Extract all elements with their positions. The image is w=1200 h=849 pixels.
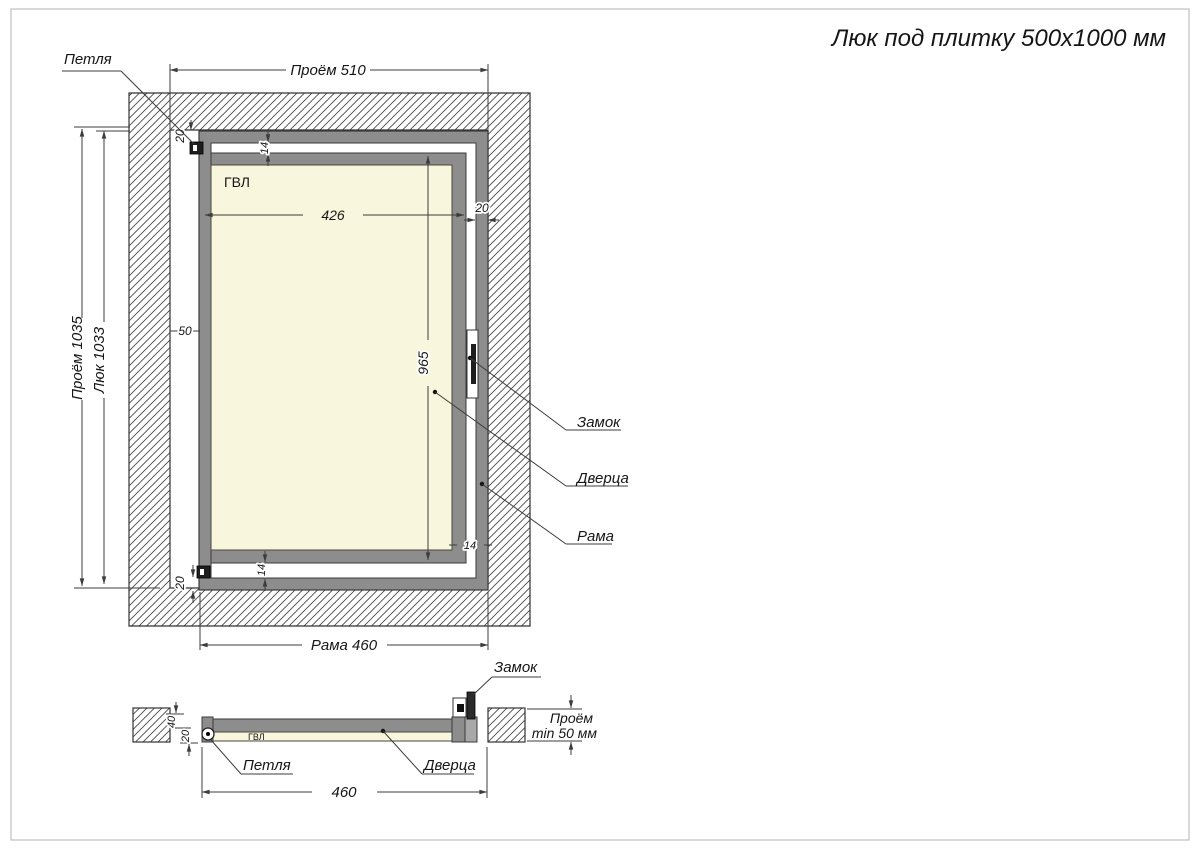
section-gvl-label: ГВЛ (248, 732, 265, 742)
dim-door-width-text: 426 (321, 207, 345, 223)
svg-text:Замок: Замок (494, 659, 538, 676)
svg-text:Замок: Замок (577, 414, 621, 431)
svg-text:Дверца: Дверца (422, 757, 476, 774)
section-door-panel (213, 719, 452, 732)
svg-text:Рама: Рама (577, 528, 614, 545)
svg-text:20: 20 (173, 576, 187, 591)
svg-text:14: 14 (464, 540, 476, 552)
dim-opening-depth-line2: min 50 мм (532, 725, 598, 741)
dim-hatch-height: Люк 1033 (91, 131, 130, 584)
hinge-bottom-icon (197, 566, 210, 578)
svg-text:50: 50 (178, 324, 192, 338)
svg-text:Дверца: Дверца (575, 470, 629, 487)
dim-opening-depth: Проём min 50 мм (527, 695, 597, 755)
dim-hinge-side-gap: 50 (170, 324, 200, 338)
hinge-top-icon (190, 142, 203, 154)
drawing-page: Люк под плитку 500х1000 мм ГВЛ (0, 0, 1200, 849)
section-view: ГВЛ 40 20 Замок (133, 659, 597, 801)
section-label-lock: Замок (473, 659, 541, 695)
front-view: ГВЛ Проём 510 Проём 103 (62, 51, 629, 654)
technical-drawing: Люк под плитку 500х1000 мм ГВЛ (0, 0, 1200, 849)
lock (467, 330, 478, 398)
dim-section-width-text: 460 (331, 784, 357, 801)
dim-depth: 40 20 (166, 702, 198, 756)
svg-text:20: 20 (474, 201, 489, 215)
dim-opening-depth-line1: Проём (550, 710, 594, 726)
svg-text:Петля: Петля (64, 51, 112, 68)
dim-door-height-text: 965 (415, 351, 431, 375)
gvl-label: ГВЛ (224, 174, 250, 190)
svg-text:14: 14 (256, 564, 268, 576)
section-frame-right-profile (465, 717, 477, 742)
section-hinge-icon (202, 728, 214, 740)
dim-depth-total-text: 40 (166, 715, 178, 728)
svg-text:Петля: Петля (243, 757, 291, 774)
dim-opening-height-text: Проём 1035 (69, 315, 86, 399)
section-lock-body (452, 717, 465, 742)
svg-text:20: 20 (173, 129, 187, 144)
dim-frame-width-text: Рама 460 (311, 637, 378, 654)
section-wall-right (488, 708, 525, 742)
section-wall-left (133, 708, 170, 742)
section-lock (453, 692, 475, 719)
drawing-title: Люк под плитку 500х1000 мм (830, 25, 1166, 52)
dim-depth-board-text: 20 (180, 729, 192, 743)
svg-text:14: 14 (259, 142, 271, 154)
section-label-hinge: Петля (211, 740, 293, 774)
dim-opening-width-text: Проём 510 (290, 62, 366, 79)
dim-hatch-height-text: Люк 1033 (91, 326, 108, 394)
